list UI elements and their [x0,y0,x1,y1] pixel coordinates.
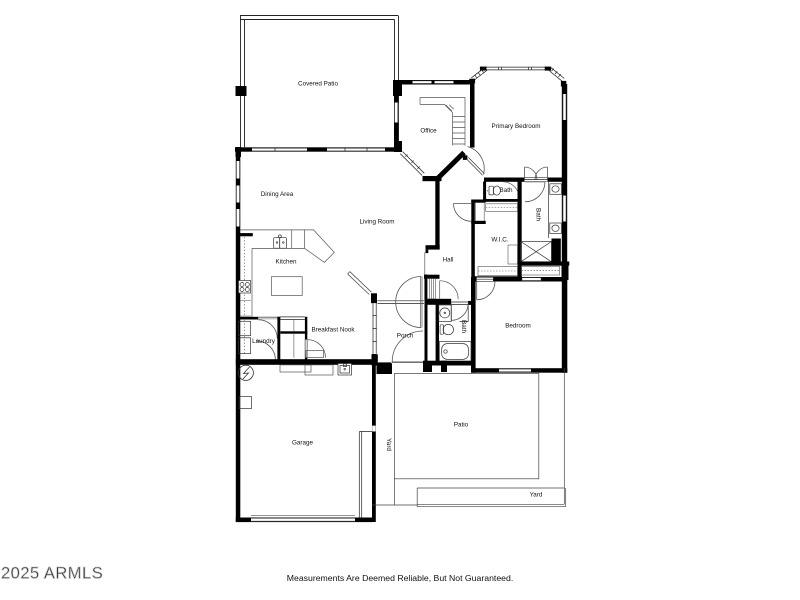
svg-text:Breakfast Nook: Breakfast Nook [311,327,355,334]
svg-text:Garage: Garage [292,440,314,447]
svg-text:Bath: Bath [500,187,513,194]
svg-text:Office: Office [420,128,437,135]
svg-text:Kitchen: Kitchen [275,259,297,266]
svg-text:Yard: Yard [385,438,392,451]
svg-text:Bath: Bath [535,208,542,221]
svg-text:Porch: Porch [397,333,414,340]
svg-text:Hall: Hall [443,257,454,264]
svg-text:Laundry: Laundry [252,338,276,345]
svg-text:Yard: Yard [530,492,543,499]
svg-text:Dining Area: Dining Area [261,191,294,198]
svg-text:Measurements Are Deemed Reliab: Measurements Are Deemed Reliable, But No… [287,573,513,583]
svg-text:Covered Patio: Covered Patio [298,81,338,88]
svg-text:Bath: Bath [460,320,467,333]
svg-text:2025 ARMLS: 2025 ARMLS [1,565,103,583]
svg-text:W.I.C.: W.I.C. [491,237,508,244]
svg-text:Bedroom: Bedroom [505,323,531,330]
svg-text:Living Room: Living Room [360,219,395,226]
svg-text:Patio: Patio [454,422,469,429]
svg-text:Primary Bedroom: Primary Bedroom [492,123,541,130]
